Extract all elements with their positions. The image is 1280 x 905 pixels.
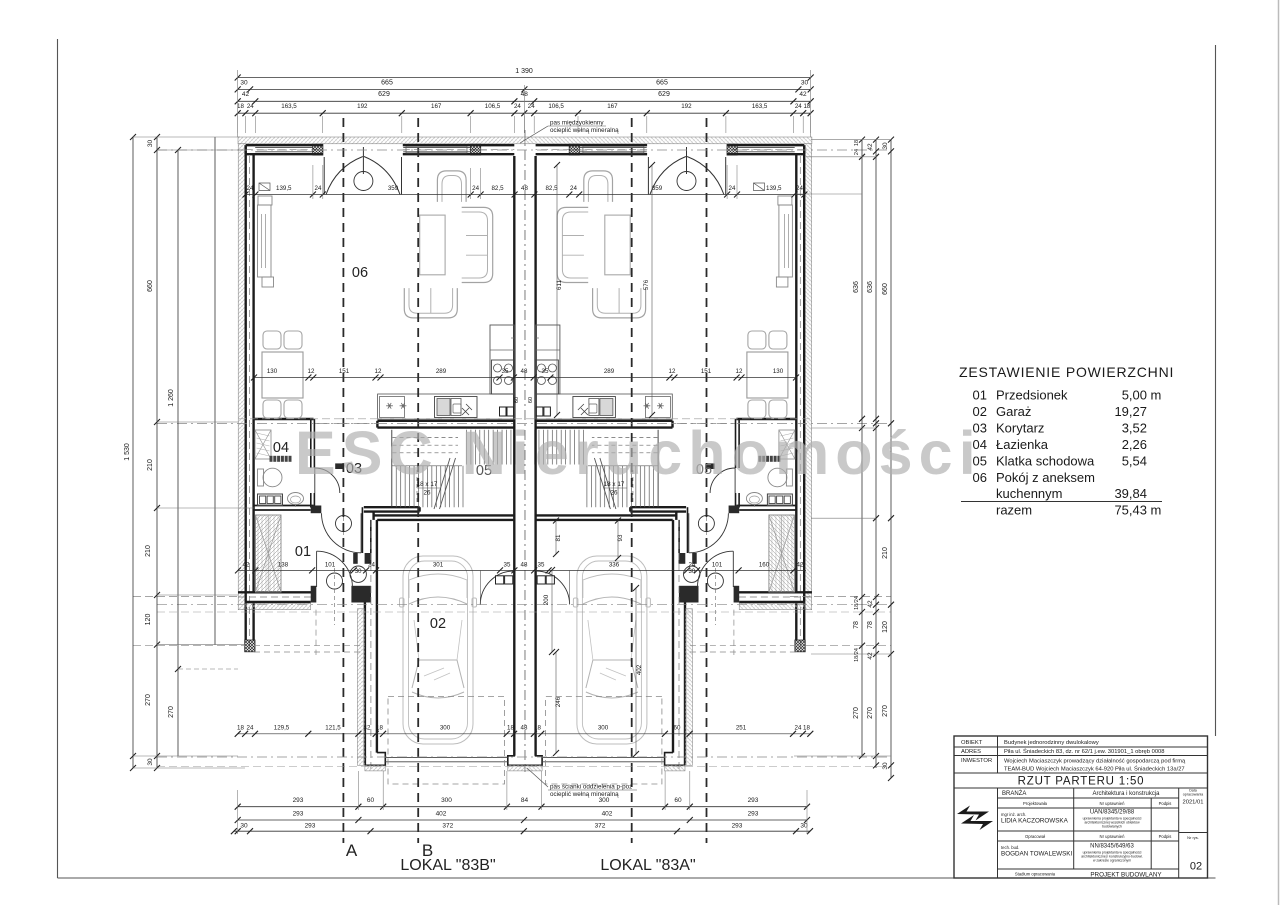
svg-text:251: 251 — [736, 725, 747, 732]
svg-text:Podpis: Podpis — [1159, 834, 1172, 839]
svg-text:pas ścianki oddzielenia p-poż: pas ścianki oddzielenia p-poż — [550, 784, 632, 791]
svg-text:18: 18 — [534, 725, 541, 732]
svg-text:26: 26 — [610, 490, 618, 497]
svg-text:75,43: 75,43 — [1114, 503, 1147, 518]
svg-text:1 260: 1 260 — [168, 389, 175, 407]
svg-text:Klatka schodowa: Klatka schodowa — [996, 454, 1095, 469]
svg-text:Podpis: Podpis — [1159, 801, 1172, 806]
svg-text:LOKAL "83B": LOKAL "83B" — [400, 857, 495, 874]
svg-text:ocieplić wełną mineralną: ocieplić wełną mineralną — [550, 791, 619, 798]
svg-text:42: 42 — [242, 91, 250, 98]
svg-text:293: 293 — [293, 811, 304, 818]
svg-text:18: 18 — [376, 725, 383, 732]
svg-text:359: 359 — [388, 185, 399, 192]
svg-text:Wojciech Maciaszczyk prowadzą: Wojciech Maciaszczyk prowadzący działaln… — [1004, 759, 1186, 765]
svg-text:24: 24 — [729, 185, 736, 192]
svg-text:48: 48 — [521, 368, 528, 375]
svg-text:210: 210 — [147, 459, 154, 471]
svg-text:30: 30 — [147, 140, 154, 148]
svg-text:24: 24 — [570, 185, 577, 192]
svg-text:m: m — [1151, 388, 1162, 403]
svg-text:636: 636 — [853, 281, 860, 293]
svg-text:30: 30 — [240, 822, 248, 829]
svg-text:101: 101 — [325, 562, 336, 569]
svg-text:Garaż: Garaż — [996, 404, 1031, 419]
svg-text:Architektura i konstrukcja: Architektura i konstrukcja — [1092, 791, 1160, 797]
svg-text:24: 24 — [795, 103, 802, 110]
svg-text:270: 270 — [168, 706, 175, 718]
svg-text:24: 24 — [689, 562, 696, 569]
svg-text:270: 270 — [853, 707, 860, 719]
svg-text:02: 02 — [430, 616, 446, 632]
svg-text:30: 30 — [882, 142, 889, 150]
svg-text:167: 167 — [607, 103, 618, 110]
svg-text:300: 300 — [598, 725, 609, 732]
svg-text:48: 48 — [521, 562, 528, 569]
svg-text:24: 24 — [514, 103, 521, 110]
svg-text:24: 24 — [854, 149, 860, 155]
svg-text:289: 289 — [436, 368, 447, 375]
svg-text:30: 30 — [147, 758, 154, 766]
svg-text:BOGDAN TOWALEWSKI: BOGDAN TOWALEWSKI — [1001, 851, 1073, 858]
svg-text:129,5: 129,5 — [274, 725, 290, 732]
svg-text:372: 372 — [442, 822, 453, 829]
svg-text:192: 192 — [681, 103, 692, 110]
svg-text:Pokój z aneksem: Pokój z aneksem — [996, 470, 1095, 485]
svg-text:293: 293 — [305, 822, 316, 829]
svg-text:151: 151 — [339, 368, 350, 375]
svg-text:336: 336 — [609, 562, 620, 569]
svg-text:629: 629 — [378, 91, 390, 98]
svg-text:372: 372 — [595, 822, 606, 829]
svg-text:Nr rys.: Nr rys. — [1187, 835, 1199, 840]
svg-text:246: 246 — [555, 696, 562, 707]
svg-text:270: 270 — [882, 705, 889, 717]
svg-text:Przedsionek: Przedsionek — [996, 388, 1068, 403]
svg-text:razem: razem — [996, 503, 1032, 518]
svg-text:pas międzyokienny: pas międzyokienny — [550, 120, 604, 127]
svg-text:Budynek jednorodzinny dwulokal: Budynek jednorodzinny dwulokalowy — [1004, 740, 1099, 746]
svg-text:60: 60 — [674, 725, 681, 732]
svg-text:Nr uprawnień: Nr uprawnień — [1100, 834, 1126, 839]
svg-text:270: 270 — [867, 707, 874, 719]
svg-text:42: 42 — [797, 562, 804, 569]
svg-text:42: 42 — [867, 652, 874, 660]
svg-text:mgr inż. arch.: mgr inż. arch. — [1001, 812, 1026, 817]
svg-text:200: 200 — [543, 594, 550, 605]
svg-text:30: 30 — [355, 569, 362, 575]
svg-text:629: 629 — [658, 91, 670, 98]
svg-text:2,26: 2,26 — [1122, 437, 1147, 452]
svg-text:60: 60 — [674, 797, 682, 804]
svg-text:120: 120 — [882, 621, 889, 633]
svg-text:660: 660 — [147, 280, 154, 292]
svg-text:A: A — [346, 841, 358, 860]
svg-text:106,5: 106,5 — [485, 103, 501, 110]
svg-text:35: 35 — [502, 368, 509, 375]
svg-text:160: 160 — [759, 562, 770, 569]
svg-text:301: 301 — [433, 562, 444, 569]
svg-text:1 530: 1 530 — [124, 443, 131, 461]
svg-text:39,84: 39,84 — [1114, 486, 1147, 501]
svg-text:24: 24 — [315, 185, 322, 192]
svg-text:Piła ul. Śniadeckich 83, dz. n: Piła ul. Śniadeckich 83, dz. nr 62/1 j.e… — [1004, 747, 1165, 755]
svg-text:Korytarz: Korytarz — [996, 421, 1044, 436]
svg-text:163,5: 163,5 — [752, 103, 768, 110]
svg-text:293: 293 — [732, 822, 743, 829]
svg-text:93: 93 — [617, 534, 624, 541]
svg-text:24: 24 — [368, 562, 375, 569]
svg-text:Nr uprawnień: Nr uprawnień — [1100, 801, 1126, 806]
svg-text:24: 24 — [472, 185, 479, 192]
svg-text:Opracował: Opracował — [1025, 834, 1045, 839]
svg-text:18/24: 18/24 — [854, 596, 860, 610]
svg-text:12: 12 — [375, 368, 382, 375]
svg-text:82,5: 82,5 — [545, 185, 558, 192]
svg-text:budowlanych: budowlanych — [1102, 825, 1122, 829]
svg-text:270: 270 — [145, 694, 152, 706]
svg-text:300: 300 — [441, 797, 452, 804]
svg-text:30: 30 — [688, 569, 695, 575]
svg-text:RZUT PARTERU 1:50: RZUT PARTERU 1:50 — [1018, 776, 1145, 788]
svg-text:130: 130 — [267, 368, 278, 375]
svg-text:35: 35 — [504, 562, 511, 569]
svg-text:402: 402 — [436, 811, 447, 818]
svg-text:210: 210 — [882, 547, 889, 559]
svg-text:02: 02 — [1190, 861, 1202, 873]
svg-text:81: 81 — [555, 534, 562, 541]
svg-text:OBIEKT: OBIEKT — [961, 740, 983, 746]
svg-text:60: 60 — [367, 797, 375, 804]
svg-text:24: 24 — [247, 185, 254, 192]
svg-text:1 390: 1 390 — [515, 68, 533, 75]
svg-text:151: 151 — [701, 368, 712, 375]
svg-text:5,54: 5,54 — [1122, 454, 1147, 469]
svg-text:INWESTOR: INWESTOR — [961, 758, 992, 764]
svg-text:665: 665 — [381, 80, 393, 87]
svg-text:300: 300 — [599, 797, 610, 804]
svg-text:130: 130 — [773, 368, 784, 375]
svg-text:kuchennym: kuchennym — [996, 486, 1062, 501]
svg-text:42: 42 — [364, 725, 371, 732]
svg-text:01: 01 — [973, 388, 987, 403]
svg-text:402: 402 — [602, 811, 613, 818]
svg-text:30: 30 — [882, 762, 889, 770]
svg-text:12: 12 — [669, 368, 676, 375]
svg-text:60: 60 — [528, 397, 534, 403]
svg-text:24: 24 — [247, 103, 254, 110]
svg-text:402: 402 — [636, 664, 643, 675]
svg-text:06: 06 — [352, 265, 368, 281]
svg-text:18: 18 — [803, 725, 810, 732]
svg-text:120: 120 — [145, 614, 152, 626]
svg-text:LOKAL "83A": LOKAL "83A" — [600, 857, 695, 874]
svg-text:LIDIA KACZOROWSKA: LIDIA KACZOROWSKA — [1001, 818, 1069, 825]
svg-text:01: 01 — [295, 544, 311, 560]
svg-text:w zakresie ograniczonym: w zakresie ograniczonym — [1093, 859, 1131, 863]
svg-text:19,27: 19,27 — [1114, 404, 1147, 419]
svg-text:60: 60 — [514, 397, 520, 403]
svg-text:636: 636 — [867, 281, 874, 293]
svg-text:PROJEKT BUDOWLANY: PROJEKT BUDOWLANY — [1090, 872, 1162, 879]
svg-text:139,5: 139,5 — [276, 185, 292, 192]
svg-text:665: 665 — [656, 80, 668, 87]
svg-text:ocieplić wełną mineralną: ocieplić wełną mineralną — [550, 127, 619, 134]
svg-text:35: 35 — [542, 368, 549, 375]
svg-text:210: 210 — [145, 545, 152, 557]
svg-text:12: 12 — [736, 368, 743, 375]
svg-text:660: 660 — [882, 283, 889, 295]
svg-text:2021/01: 2021/01 — [1183, 800, 1204, 806]
svg-text:42: 42 — [867, 143, 874, 151]
svg-text:48: 48 — [521, 725, 528, 732]
svg-text:42: 42 — [243, 562, 250, 569]
svg-text:24: 24 — [528, 103, 535, 110]
svg-text:78: 78 — [867, 621, 874, 629]
svg-text:26: 26 — [423, 490, 431, 497]
svg-text:Projektowała: Projektowała — [1023, 801, 1048, 806]
svg-text:576: 576 — [643, 279, 650, 290]
svg-text:tech. bud.: tech. bud. — [1001, 845, 1019, 850]
svg-text:78: 78 — [853, 621, 860, 629]
svg-text:30: 30 — [801, 80, 809, 87]
svg-text:163,5: 163,5 — [281, 103, 297, 110]
svg-text:293: 293 — [748, 797, 759, 804]
svg-text:167: 167 — [431, 103, 442, 110]
svg-text:18: 18 — [803, 103, 810, 110]
svg-text:m: m — [1151, 503, 1162, 518]
svg-text:24: 24 — [795, 725, 802, 732]
svg-text:293: 293 — [293, 797, 304, 804]
svg-text:12: 12 — [308, 368, 315, 375]
svg-text:289: 289 — [604, 368, 615, 375]
svg-text:02: 02 — [973, 404, 987, 419]
svg-text:24: 24 — [796, 185, 803, 192]
svg-text:82,5: 82,5 — [491, 185, 504, 192]
svg-text:18: 18 — [854, 140, 860, 146]
svg-text:TEAM-BUD Wojciech Maciaszczyk: TEAM-BUD Wojciech Maciaszczyk 64-920 Pił… — [1004, 765, 1185, 773]
svg-text:42: 42 — [799, 91, 807, 98]
svg-text:18: 18 — [237, 103, 244, 110]
svg-text:35: 35 — [538, 562, 545, 569]
svg-text:18: 18 — [237, 725, 244, 732]
svg-text:opracowania: opracowania — [1183, 793, 1203, 797]
svg-text:NN/8345/649/63: NN/8345/649/63 — [1090, 844, 1134, 850]
svg-text:ZESTAWIENIE POWIERZCHNI: ZESTAWIENIE POWIERZCHNI — [959, 364, 1174, 380]
svg-text:359: 359 — [652, 185, 663, 192]
svg-text:ESC Nieruchomości: ESC Nieruchomości — [295, 419, 982, 487]
svg-text:Stadium opracowania: Stadium opracowania — [1015, 872, 1056, 877]
svg-text:30: 30 — [240, 80, 248, 87]
svg-text:293: 293 — [748, 811, 759, 818]
svg-text:48: 48 — [521, 185, 528, 192]
svg-text:84: 84 — [521, 797, 529, 804]
svg-text:192: 192 — [357, 103, 368, 110]
svg-text:3,52: 3,52 — [1122, 421, 1147, 436]
svg-text:ADRES: ADRES — [961, 749, 981, 755]
svg-text:18: 18 — [507, 725, 514, 732]
svg-text:121,5: 121,5 — [325, 725, 341, 732]
svg-text:42: 42 — [867, 600, 874, 608]
svg-text:300: 300 — [440, 725, 451, 732]
svg-text:04: 04 — [273, 440, 289, 456]
svg-text:24: 24 — [247, 725, 254, 732]
svg-text:BRANŻA: BRANŻA — [1002, 790, 1026, 797]
svg-text:106,5: 106,5 — [548, 103, 564, 110]
svg-text:5,00: 5,00 — [1122, 388, 1147, 403]
svg-text:Łazienka: Łazienka — [996, 437, 1049, 452]
svg-text:UAN/8345/29/88: UAN/8345/29/88 — [1090, 810, 1135, 816]
svg-text:138: 138 — [278, 562, 289, 569]
svg-text:18/24: 18/24 — [854, 648, 860, 662]
svg-text:139,5: 139,5 — [766, 185, 782, 192]
svg-text:101: 101 — [712, 562, 723, 569]
svg-text:611: 611 — [556, 280, 563, 290]
